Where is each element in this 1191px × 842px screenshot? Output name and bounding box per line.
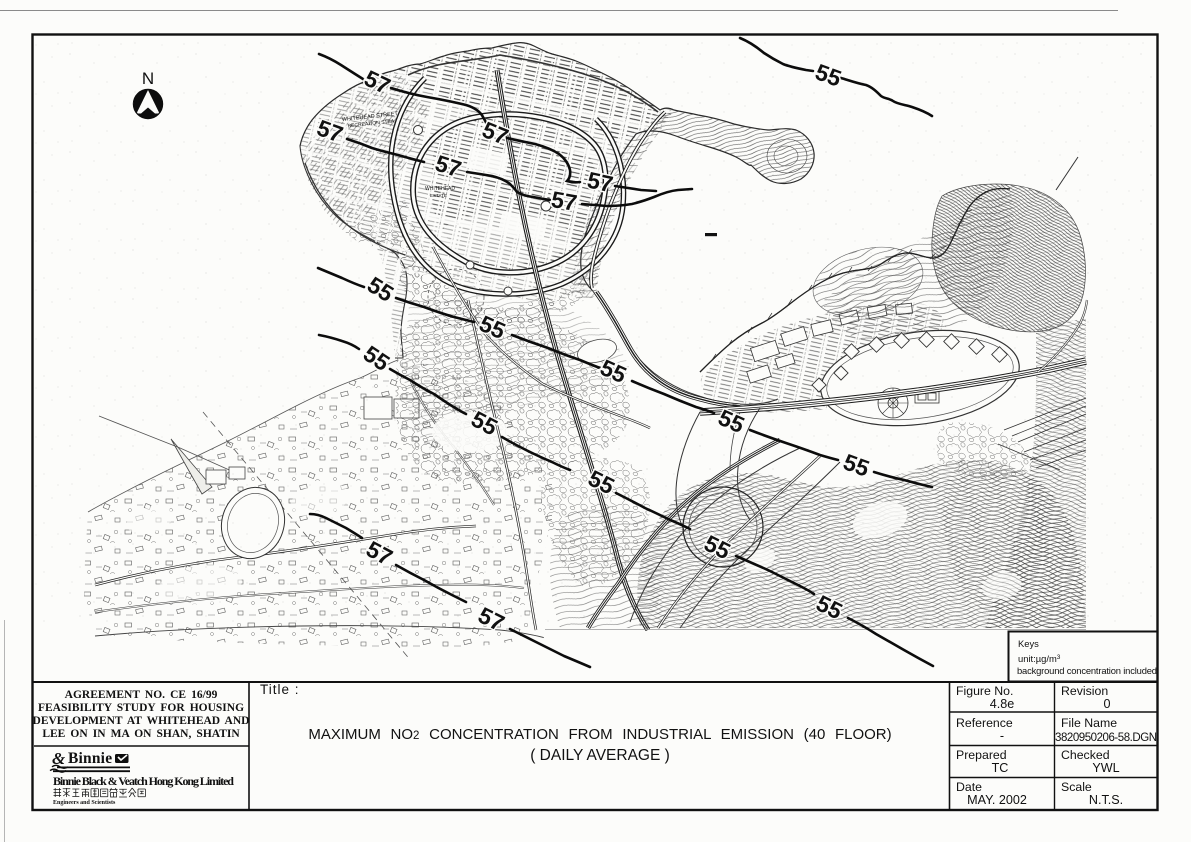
- svg-text:File Name: File Name: [1061, 716, 1117, 730]
- svg-text:MAXIMUM NO2 CONCENTRATION FROM: MAXIMUM NO2 CONCENTRATION FROM INDUSTRIA…: [308, 726, 891, 743]
- svg-text:Date: Date: [956, 780, 982, 794]
- svg-text:AGREEMENT NO. CE 16/99: AGREEMENT NO. CE 16/99: [65, 689, 218, 701]
- svg-text:Binnie Black & Veatch Hong Kon: Binnie Black & Veatch Hong Kong Limited: [53, 774, 234, 788]
- svg-text:LEE ON IN MA ON SHAN, SHATIN: LEE ON IN MA ON SHAN, SHATIN: [42, 728, 240, 740]
- svg-text:background concentration inclu: background concentration included: [1017, 665, 1157, 676]
- svg-text:57: 57: [549, 186, 579, 216]
- svg-text:57: 57: [585, 167, 615, 198]
- svg-text:( DAILY AVERAGE ): ( DAILY AVERAGE ): [530, 747, 670, 764]
- svg-text:Figure No.: Figure No.: [956, 684, 1013, 698]
- svg-text:-: -: [1000, 729, 1004, 743]
- svg-text:DEVELOPMENT AT WHITEHEAD AND: DEVELOPMENT AT WHITEHEAD AND: [33, 715, 250, 727]
- svg-text:unit:µg/m3: unit:µg/m3: [1018, 653, 1061, 664]
- svg-text:Revision: Revision: [1061, 684, 1108, 698]
- svg-text:MAY. 2002: MAY. 2002: [967, 793, 1027, 807]
- svg-text:Engineers and Scientists: Engineers and Scientists: [53, 800, 116, 806]
- svg-text:Binnie: Binnie: [68, 750, 112, 767]
- svg-text:YWL: YWL: [1092, 761, 1119, 775]
- svg-text:Title :: Title :: [260, 682, 300, 697]
- svg-text:Checked: Checked: [1061, 748, 1110, 762]
- svg-text:TC: TC: [992, 761, 1009, 775]
- svg-text:N.T.S.: N.T.S.: [1089, 793, 1123, 807]
- svg-text:Prepared: Prepared: [956, 748, 1007, 762]
- svg-text:0: 0: [1103, 697, 1110, 711]
- svg-text:FEASIBILITY STUDY FOR HOUSING: FEASIBILITY STUDY FOR HOUSING: [38, 702, 244, 714]
- svg-text:Reference: Reference: [956, 716, 1013, 730]
- svg-text:Keys: Keys: [1018, 638, 1039, 649]
- svg-text:3820950206-58.DGN: 3820950206-58.DGN: [1055, 732, 1157, 744]
- svg-text:4.8e: 4.8e: [990, 697, 1015, 711]
- svg-text:Scale: Scale: [1061, 780, 1092, 794]
